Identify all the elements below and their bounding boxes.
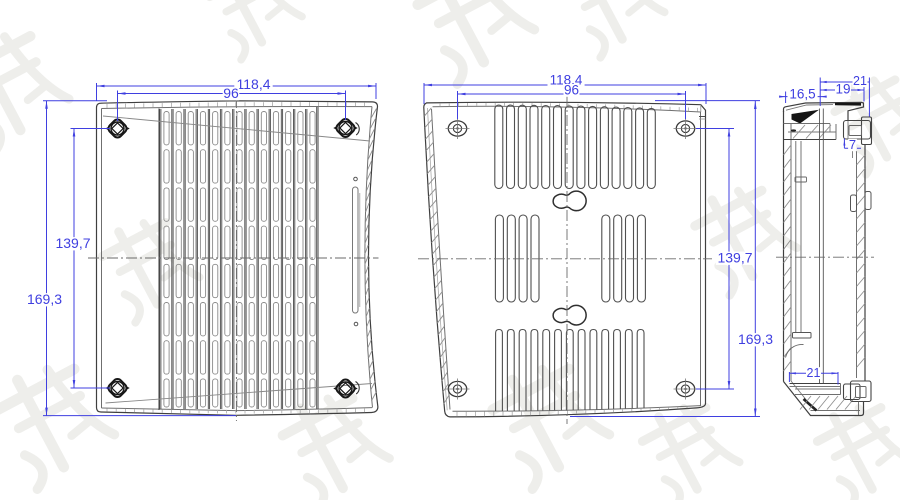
svg-text:21: 21 — [853, 74, 867, 88]
svg-text:118,4: 118,4 — [237, 76, 271, 92]
svg-text:19: 19 — [835, 82, 850, 97]
svg-text:16,5: 16,5 — [789, 87, 815, 102]
svg-text:169,3: 169,3 — [27, 291, 62, 307]
svg-text:139,7: 139,7 — [717, 250, 752, 266]
svg-text:169,3: 169,3 — [738, 331, 773, 347]
svg-text:7: 7 — [849, 137, 856, 152]
svg-text:96: 96 — [223, 85, 239, 101]
svg-text:96: 96 — [564, 83, 579, 98]
svg-text:21: 21 — [807, 366, 821, 380]
svg-text:139,7: 139,7 — [55, 235, 90, 251]
